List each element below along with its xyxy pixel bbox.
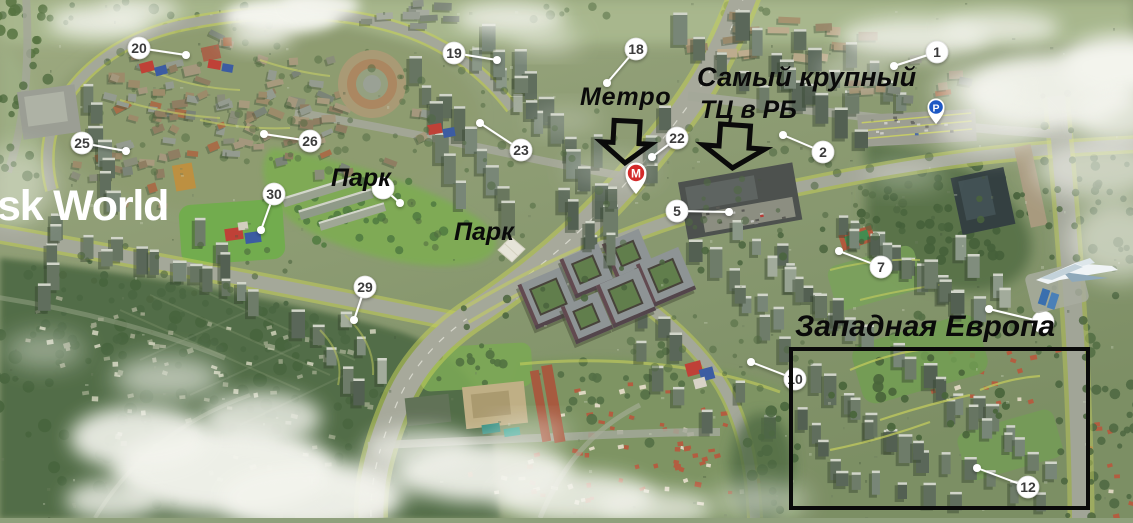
svg-text:ТЦ в РБ: ТЦ в РБ [700, 96, 797, 124]
svg-text:18: 18 [628, 41, 644, 57]
svg-text:12: 12 [1020, 479, 1036, 495]
svg-text:Западная Европа: Западная Европа [795, 310, 1055, 343]
svg-text:30: 30 [266, 186, 282, 202]
svg-text:20: 20 [131, 40, 147, 56]
svg-text:5: 5 [673, 203, 681, 219]
svg-text:19: 19 [446, 45, 462, 61]
svg-text:2: 2 [819, 144, 827, 160]
svg-text:25: 25 [74, 135, 90, 151]
svg-text:Парк: Парк [331, 164, 392, 192]
svg-text:M: M [631, 167, 641, 181]
svg-text:23: 23 [513, 142, 529, 158]
svg-text:Метро: Метро [580, 83, 672, 111]
svg-text:1: 1 [933, 44, 941, 60]
svg-text:29: 29 [357, 279, 373, 295]
svg-text:sk World: sk World [0, 182, 168, 230]
svg-text:26: 26 [302, 133, 318, 149]
svg-text:22: 22 [669, 130, 685, 146]
svg-text:Парк: Парк [454, 218, 515, 246]
svg-text:Самый крупный: Самый крупный [697, 62, 917, 92]
svg-text:7: 7 [877, 259, 885, 275]
svg-text:P: P [932, 103, 939, 115]
